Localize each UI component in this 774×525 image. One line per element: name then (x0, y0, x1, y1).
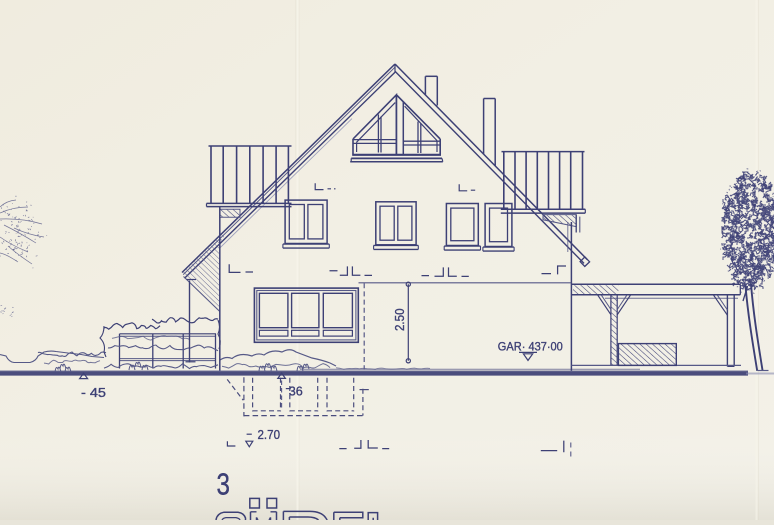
svg-text:2.50: 2.50 (392, 309, 407, 332)
svg-text:- 45: - 45 (81, 385, 106, 400)
svg-text:2.70: 2.70 (258, 427, 281, 442)
svg-text:GAR· 437·00: GAR· 437·00 (498, 340, 563, 354)
svg-text:3: 3 (217, 467, 230, 502)
svg-text:36: 36 (289, 384, 303, 399)
